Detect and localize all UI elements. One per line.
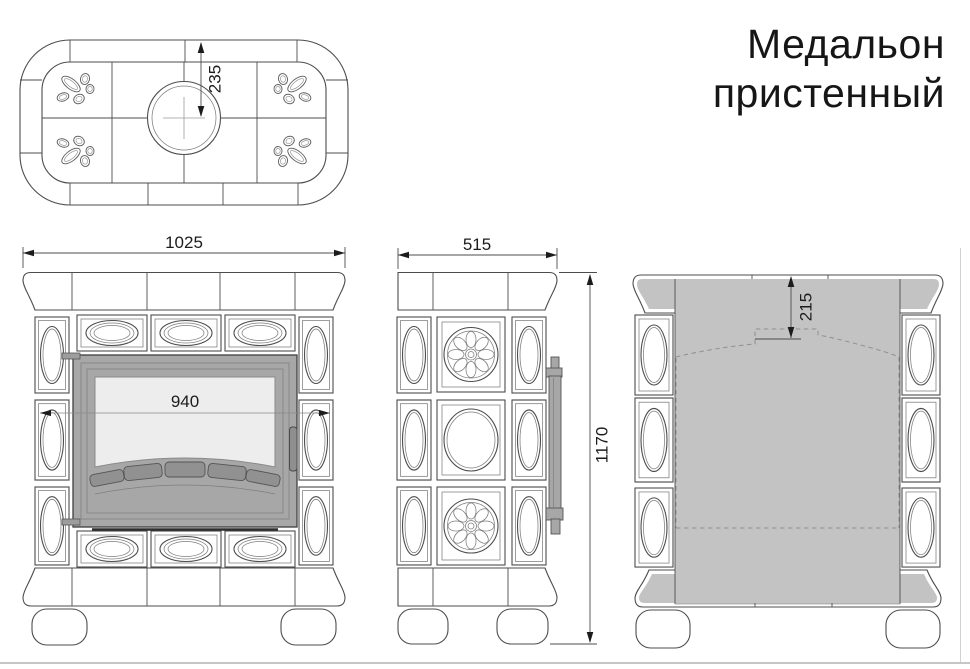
side-right-column [512, 317, 546, 565]
side-base [398, 568, 557, 606]
back-right-column [902, 315, 940, 567]
drawing-sheet: Медальон пристенный [0, 0, 970, 669]
firebox-door [62, 353, 297, 530]
side-door-profile [546, 357, 563, 534]
door-hinge-top [62, 353, 80, 359]
door-handle [290, 427, 298, 471]
stove-drawing: 235 1025 [0, 0, 970, 669]
dimension-front-width: 1025 [23, 233, 345, 268]
back-left-foot [636, 610, 690, 648]
side-right-foot [497, 609, 548, 644]
sheet-right-edge [960, 248, 961, 662]
door-glass [95, 377, 275, 467]
side-left-column [397, 317, 431, 565]
front-top-tile-row [77, 315, 295, 351]
dimension-label-1170: 1170 [592, 427, 611, 464]
front-cornice [23, 273, 345, 311]
side-cornice [398, 273, 557, 311]
back-right-foot [886, 610, 940, 648]
front-right-foot [281, 609, 336, 645]
dimension-label-1025: 1025 [165, 233, 203, 252]
side-left-foot [398, 609, 448, 644]
dimension-label-515: 515 [463, 235, 491, 254]
door-hinge-bottom [62, 519, 80, 525]
back-view: 215 [633, 275, 943, 648]
front-right-column [299, 317, 333, 565]
back-left-column [635, 315, 673, 567]
dimension-label-235: 235 [205, 65, 224, 93]
front-left-foot [32, 609, 87, 645]
front-view: 1025 [23, 233, 345, 645]
sheet-bottom-edge [0, 662, 970, 664]
side-middle-tiles [437, 317, 505, 565]
side-view: 515 [397, 235, 611, 644]
front-base [23, 568, 345, 606]
top-view: 235 [20, 40, 348, 205]
dimension-side-depth: 515 [398, 235, 557, 269]
dimension-label-940: 940 [171, 392, 199, 411]
back-wall-panel [675, 279, 900, 604]
dimension-label-215: 215 [796, 293, 815, 321]
front-bottom-tile-row [77, 531, 295, 567]
